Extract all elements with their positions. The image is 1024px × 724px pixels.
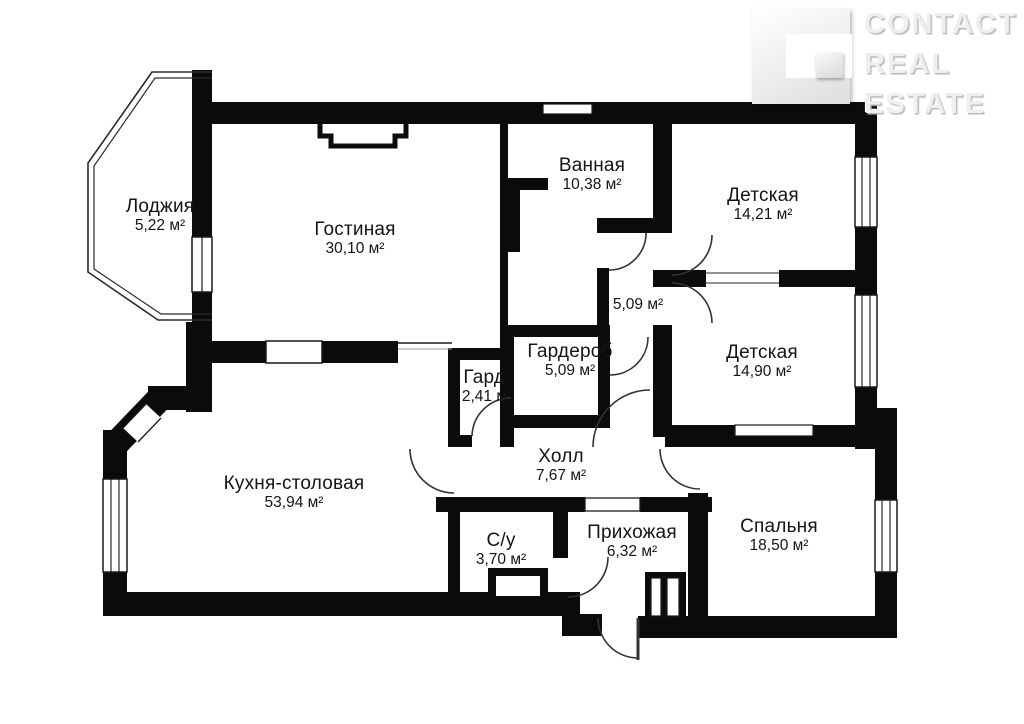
room-label: 5,09 м² — [613, 296, 663, 313]
room-name: Лоджия — [126, 196, 195, 217]
contact-logo-text: CONTACT REAL ESTATE — [864, 4, 1018, 124]
room-name: Детская — [726, 342, 798, 363]
room-label: Ванная10,38 м² — [559, 155, 625, 194]
room-area: 6,32 м² — [587, 543, 677, 560]
room-label: Спальня18,50 м² — [740, 516, 818, 555]
logo-line-1: CONTACT — [864, 4, 1018, 44]
room-name: Гард. — [462, 367, 512, 388]
room-label: Гостиная30,10 м² — [314, 219, 395, 258]
room-name: Ванная — [559, 155, 625, 176]
contact-logo-mark — [752, 8, 850, 104]
room-label: Лоджия5,22 м² — [126, 196, 195, 235]
room-area: 5,09 м² — [613, 296, 663, 313]
room-label: Детская14,21 м² — [727, 185, 799, 224]
room-area: 14,90 м² — [726, 363, 798, 380]
room-name: Прихожая — [587, 522, 677, 543]
room-label: Кухня-столовая53,94 м² — [224, 473, 365, 512]
room-area: 53,94 м² — [224, 494, 365, 511]
room-label: Гардероб5,09 м² — [527, 341, 612, 380]
room-area: 10,38 м² — [559, 176, 625, 193]
logo-line-3: ESTATE — [864, 84, 1018, 124]
floorplan-page: CONTACT REAL ESTATE Лоджия5,22 м²Гостина… — [0, 0, 1024, 724]
room-area: 30,10 м² — [314, 240, 395, 257]
room-name: Гостиная — [314, 219, 395, 240]
room-name: Холл — [536, 446, 586, 467]
room-area: 7,67 м² — [536, 467, 586, 484]
room-name: С/у — [476, 530, 526, 551]
room-label: Холл7,67 м² — [536, 446, 586, 485]
room-area: 2,41 м² — [462, 388, 512, 405]
room-label: Детская14,90 м² — [726, 342, 798, 381]
room-area: 3,70 м² — [476, 551, 526, 568]
room-label: С/у3,70 м² — [476, 530, 526, 569]
room-name: Гардероб — [527, 341, 612, 362]
room-area: 5,22 м² — [126, 217, 195, 234]
room-area: 14,21 м² — [727, 206, 799, 223]
logo-line-2: REAL — [864, 44, 1018, 84]
room-name: Детская — [727, 185, 799, 206]
room-area: 5,09 м² — [527, 362, 612, 379]
room-name: Спальня — [740, 516, 818, 537]
room-label: Гард.2,41 м² — [462, 367, 512, 406]
room-name: Кухня-столовая — [224, 473, 365, 494]
logo-c-dot — [816, 52, 843, 78]
room-label: Прихожая6,32 м² — [587, 522, 677, 561]
room-area: 18,50 м² — [740, 537, 818, 554]
